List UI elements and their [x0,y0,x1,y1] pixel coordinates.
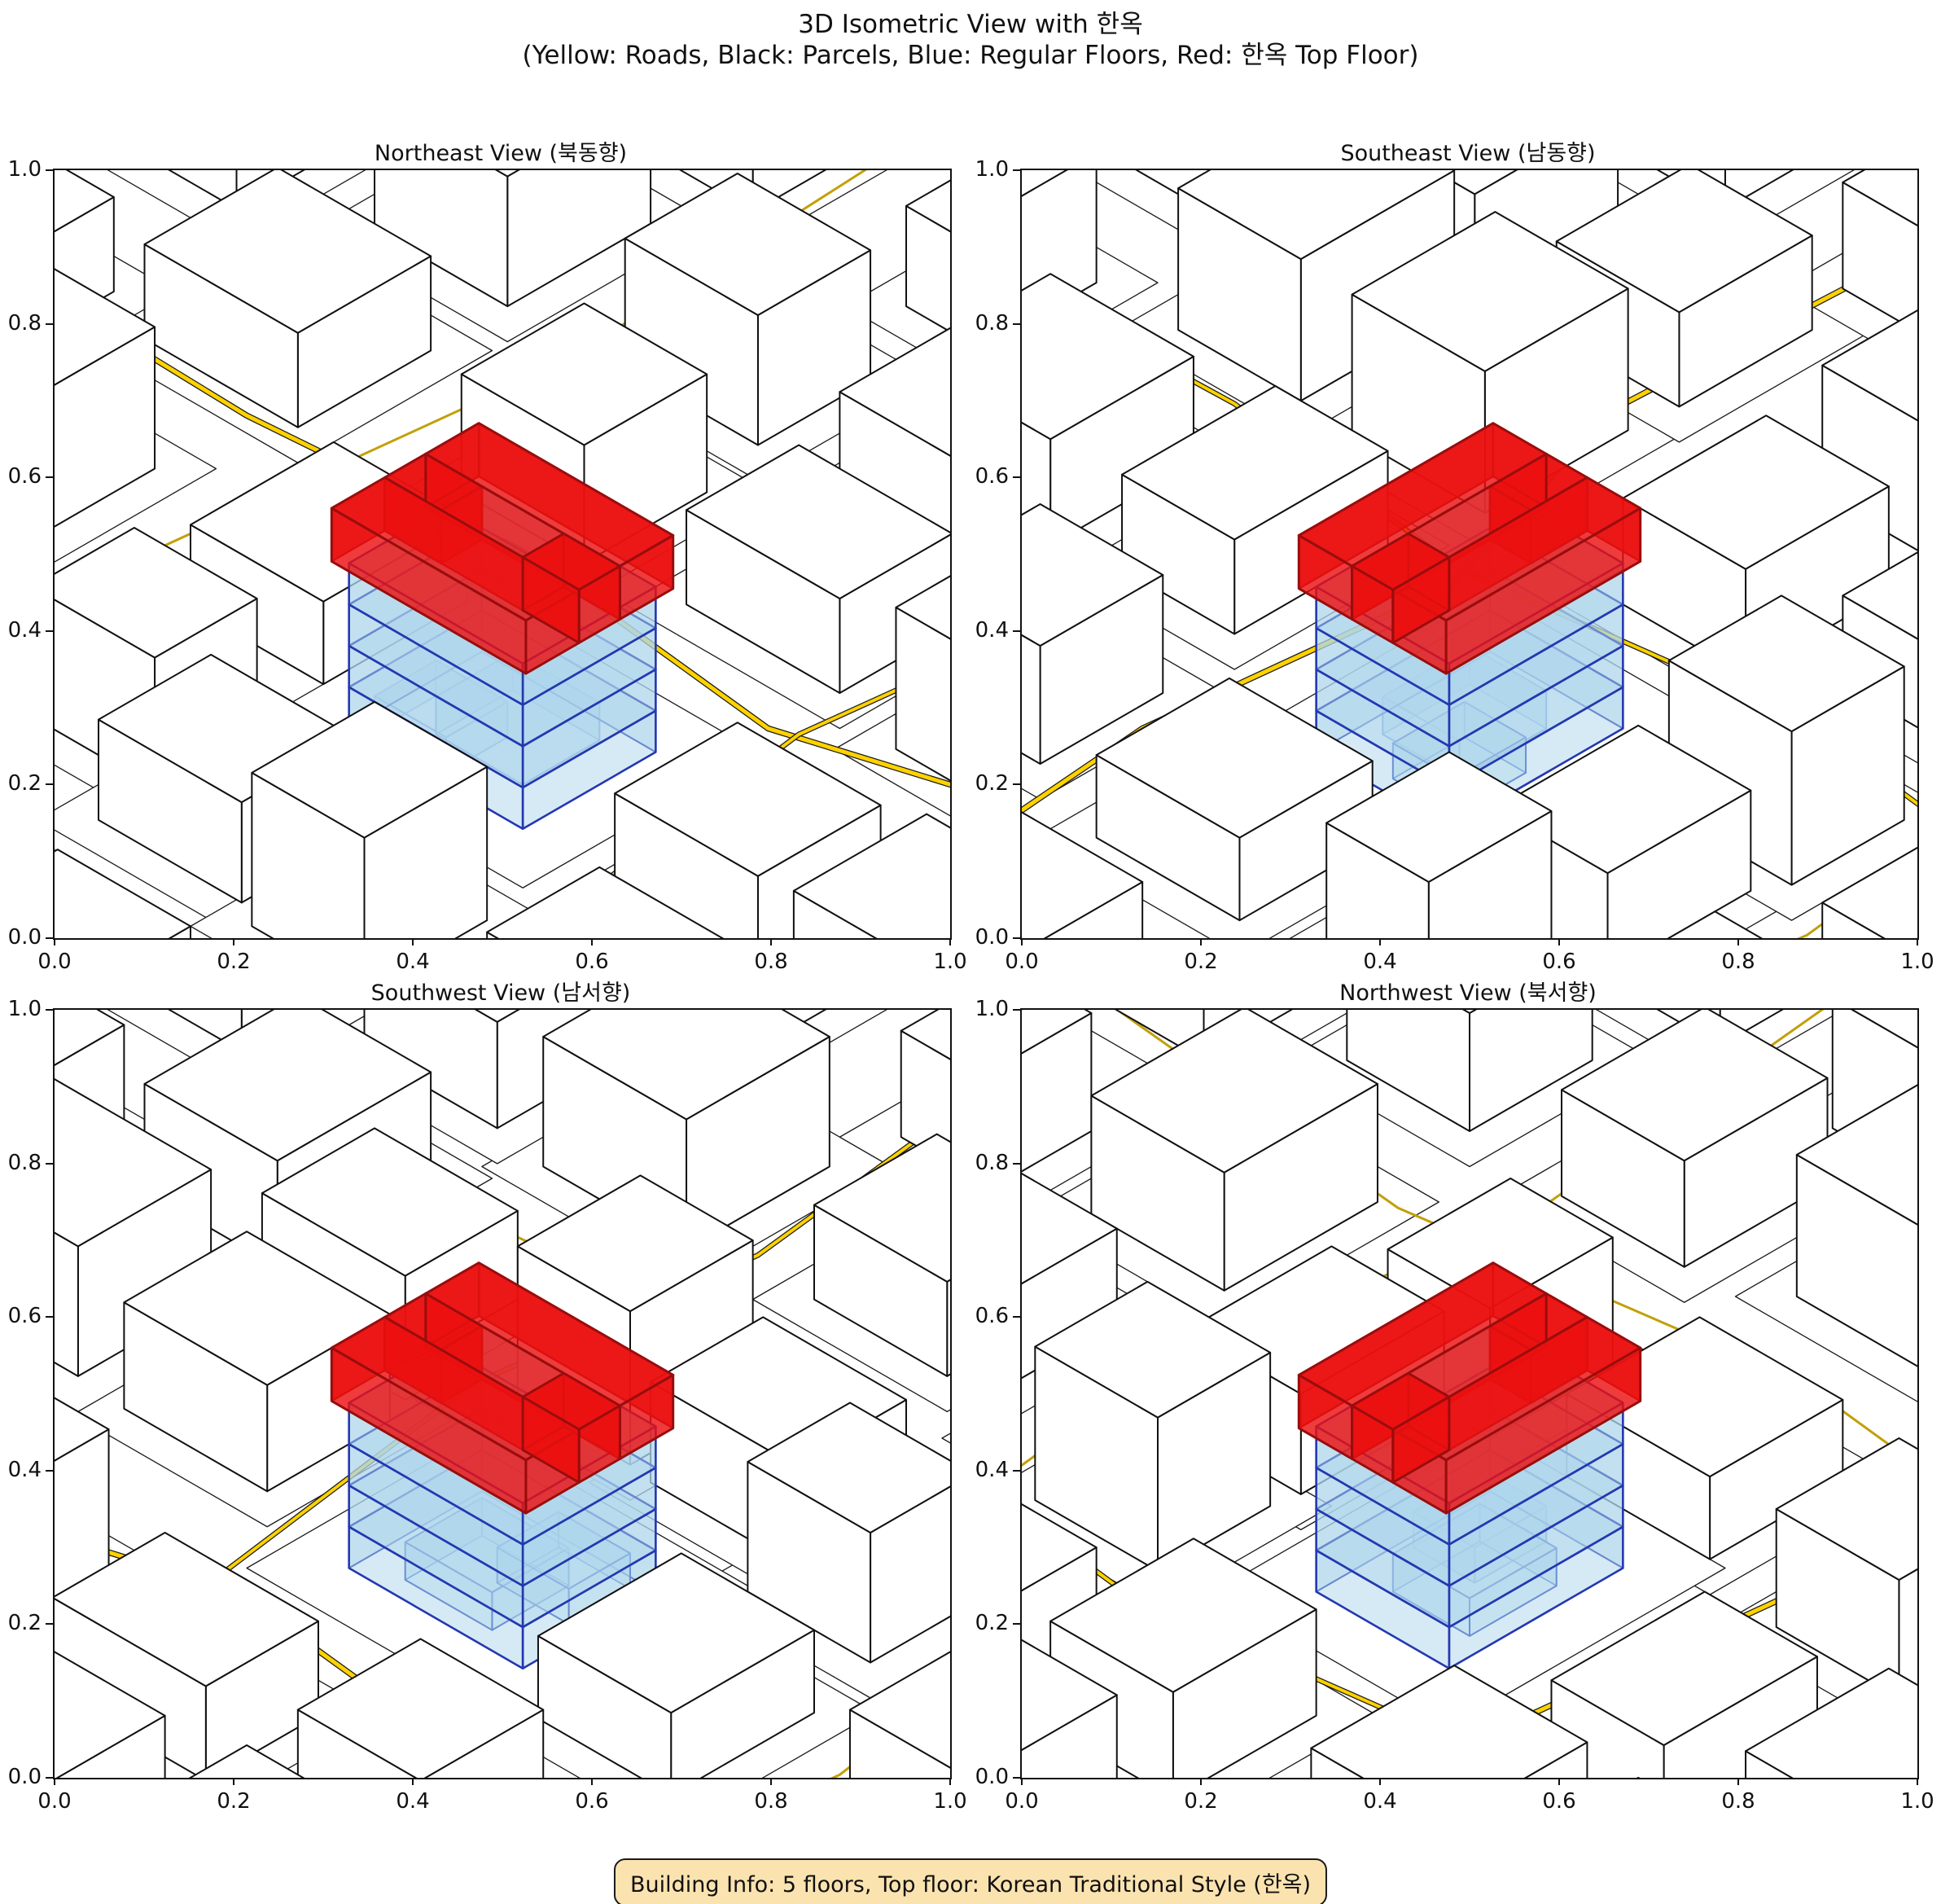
x-tick-label: 0.4 [376,1789,449,1814]
tick-mark [54,938,55,945]
x-tick-label: 1.0 [914,1789,987,1814]
tick-mark [412,938,414,945]
y-tick-label: 0.6 [0,1304,42,1328]
tick-mark [46,1777,53,1779]
tick-mark [1917,1778,1918,1785]
isometric-scene-southeast [1022,170,1917,938]
tick-mark [46,1163,53,1165]
tick-mark [1013,1316,1020,1318]
subplot-title-northwest: Northwest View (북서향) [1020,975,1916,1007]
tick-mark [46,476,53,478]
tick-mark [591,1778,593,1785]
tick-mark [46,1316,53,1318]
tick-mark [412,1778,414,1785]
tick-mark [46,1470,53,1472]
subplot-title-southwest: Southwest View (남서향) [53,975,949,1007]
tick-mark [46,1623,53,1625]
x-tick-label: 0.2 [1164,950,1238,974]
y-tick-label: 0.4 [0,618,42,643]
tick-mark [1917,938,1918,945]
tick-mark [1013,630,1020,632]
y-tick-label: 0.6 [944,464,1009,489]
tick-mark [770,938,772,945]
x-tick-label: 0.8 [1702,950,1775,974]
tick-mark [233,938,234,945]
tick-mark [1013,1163,1020,1165]
tick-mark [46,630,53,632]
x-tick-label: 0.6 [555,950,629,974]
tick-mark [770,1778,772,1785]
tick-mark [1021,1778,1023,1785]
building-info-box: Building Info: 5 floors, Top floor: Kore… [614,1858,1327,1904]
y-tick-label: 1.0 [944,997,1009,1021]
figure-title: 3D Isometric View with 한옥 [0,10,1941,39]
y-tick-label: 0.8 [0,311,42,336]
tick-mark [1013,1470,1020,1472]
subplot-title-southeast: Southeast View (남동향) [1020,135,1916,167]
x-tick-label: 0.6 [1523,950,1596,974]
tick-mark [46,1009,53,1011]
tick-mark [1021,938,1023,945]
y-tick-label: 1.0 [0,997,42,1021]
x-tick-label: 0.6 [1523,1789,1596,1814]
tick-mark [1558,938,1560,945]
y-tick-label: 0.4 [0,1458,42,1482]
x-tick-label: 0.8 [1702,1789,1775,1814]
tick-mark [1558,1778,1560,1785]
x-tick-label: 1.0 [1881,1789,1941,1814]
tick-mark [1013,937,1020,939]
x-tick-label: 0.4 [376,950,449,974]
tick-mark [1379,938,1381,945]
y-tick-label: 1.0 [944,157,1009,182]
x-tick-label: 0.8 [734,950,808,974]
tick-mark [1200,1778,1202,1785]
plot-area-northeast: 0.00.00.20.20.40.40.60.60.80.81.01.0 [53,169,952,940]
y-tick-label: 0.0 [944,1765,1009,1789]
y-tick-label: 0.2 [0,1611,42,1635]
y-tick-label: 0.6 [0,464,42,489]
tick-mark [1737,1778,1739,1785]
tick-mark [1379,1778,1381,1785]
x-tick-label: 0.6 [555,1789,629,1814]
x-tick-label: 0.8 [734,1789,808,1814]
y-tick-label: 0.2 [944,771,1009,796]
tick-mark [1013,476,1020,478]
tick-mark [1013,169,1020,171]
figure: 3D Isometric View with 한옥 (Yellow: Roads… [0,0,1941,1904]
figure-subtitle: (Yellow: Roads, Black: Parcels, Blue: Re… [0,41,1941,70]
tick-mark [233,1778,234,1785]
tick-mark [1013,1623,1020,1625]
y-tick-label: 0.0 [0,925,42,950]
y-tick-label: 1.0 [0,157,42,182]
x-tick-label: 0.0 [985,950,1058,974]
tick-mark [1200,938,1202,945]
y-tick-label: 0.4 [944,1458,1009,1482]
y-tick-label: 0.8 [0,1151,42,1175]
isometric-scene-northwest [1022,1010,1917,1778]
tick-mark [54,1778,55,1785]
tick-mark [46,323,53,325]
subplot-title-northeast: Northeast View (북동향) [53,135,949,167]
tick-mark [46,169,53,171]
x-tick-label: 0.2 [1164,1789,1238,1814]
tick-mark [46,783,53,785]
y-tick-label: 0.6 [944,1304,1009,1328]
tick-mark [1013,1777,1020,1779]
x-tick-label: 0.4 [1343,950,1417,974]
tick-mark [1013,323,1020,325]
y-tick-label: 0.2 [0,771,42,796]
x-tick-label: 0.4 [1343,1789,1417,1814]
y-tick-label: 0.8 [944,1151,1009,1175]
y-tick-label: 0.0 [0,1765,42,1789]
y-tick-label: 0.8 [944,311,1009,336]
y-tick-label: 0.4 [944,618,1009,643]
tick-mark [1737,938,1739,945]
y-tick-label: 0.0 [944,925,1009,950]
isometric-scene-northeast [55,170,950,938]
x-tick-label: 0.0 [18,950,91,974]
x-tick-label: 0.0 [18,1789,91,1814]
x-tick-label: 0.0 [985,1789,1058,1814]
plot-area-southwest: 0.00.00.20.20.40.40.60.60.80.81.01.0 [53,1008,952,1779]
x-tick-label: 1.0 [914,950,987,974]
plot-area-southeast: 0.00.00.20.20.40.40.60.60.80.81.01.0 [1020,169,1919,940]
tick-mark [46,937,53,939]
x-tick-label: 0.2 [197,950,270,974]
x-tick-label: 1.0 [1881,950,1941,974]
tick-mark [1013,783,1020,785]
plot-area-northwest: 0.00.00.20.20.40.40.60.60.80.81.01.0 [1020,1008,1919,1779]
y-tick-label: 0.2 [944,1611,1009,1635]
tick-mark [1013,1009,1020,1011]
x-tick-label: 0.2 [197,1789,270,1814]
isometric-scene-southwest [55,1010,950,1778]
tick-mark [591,938,593,945]
